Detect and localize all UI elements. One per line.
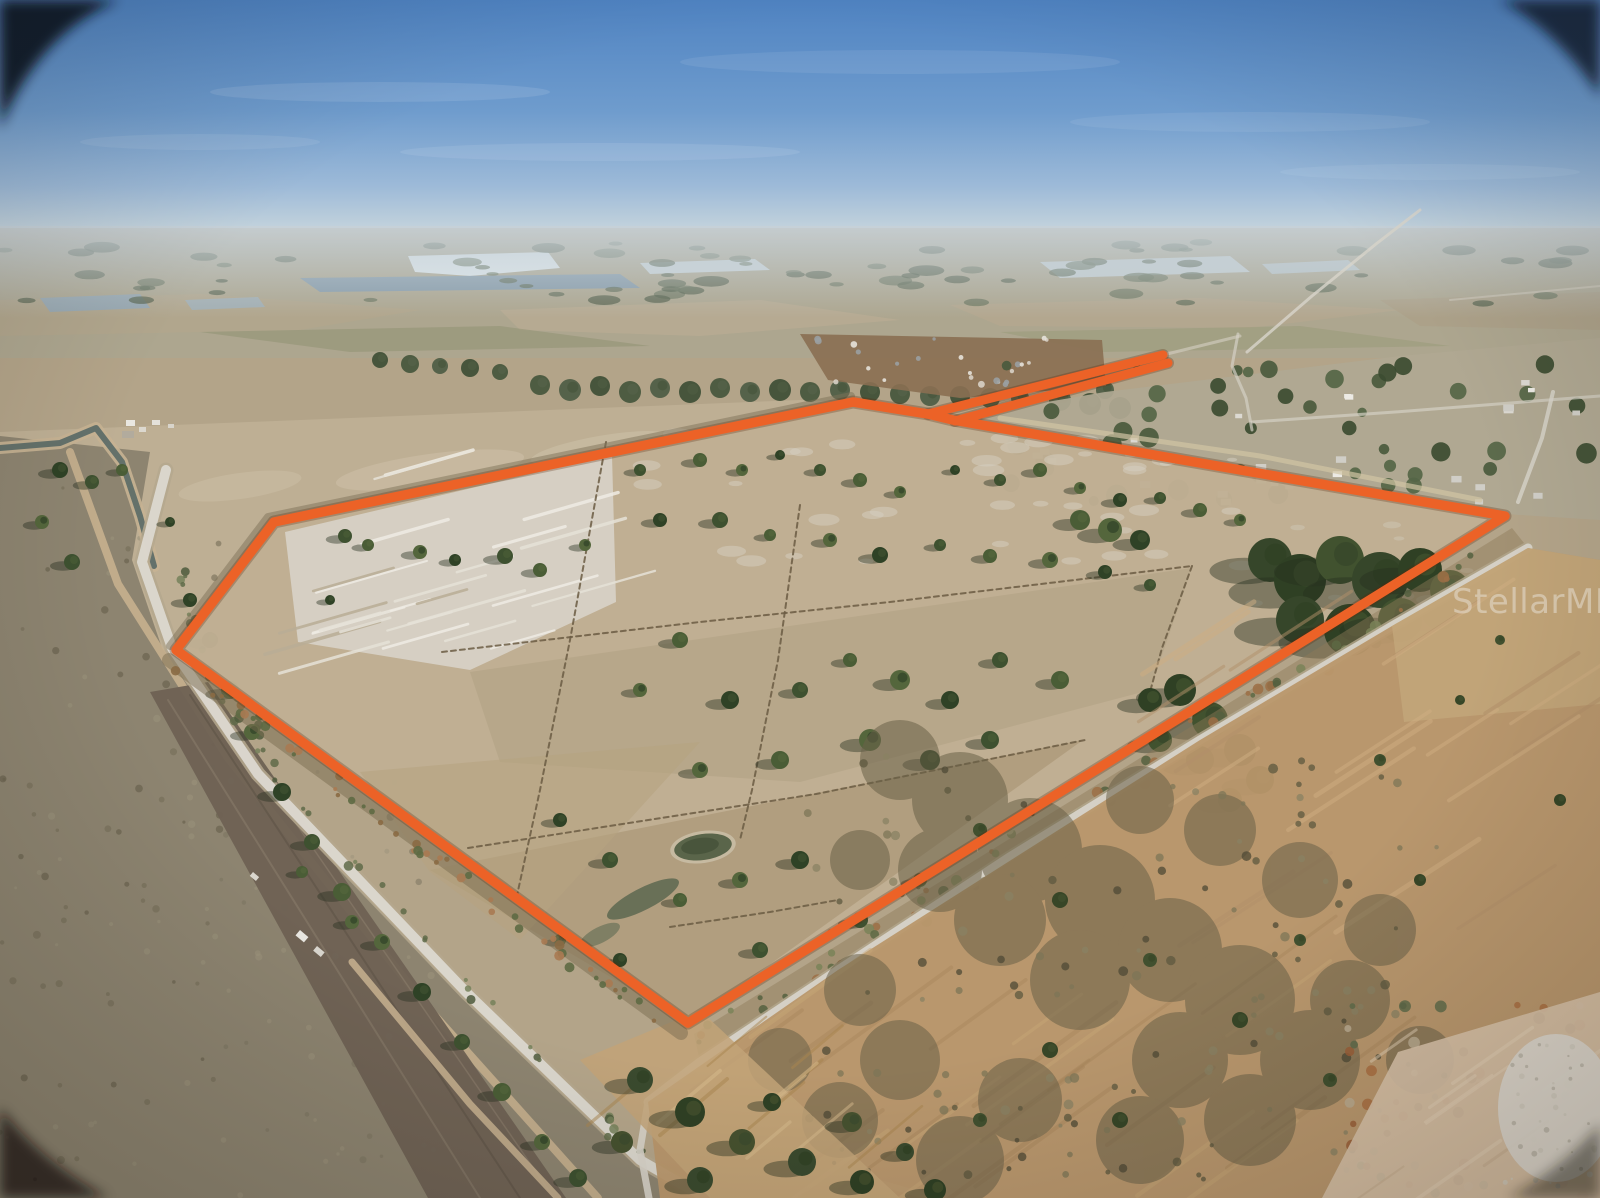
aerial-photo: StellarMLS <box>0 0 1600 1198</box>
lens-vignette <box>0 0 1600 1198</box>
aerial-photo-canvas <box>0 0 1600 1198</box>
